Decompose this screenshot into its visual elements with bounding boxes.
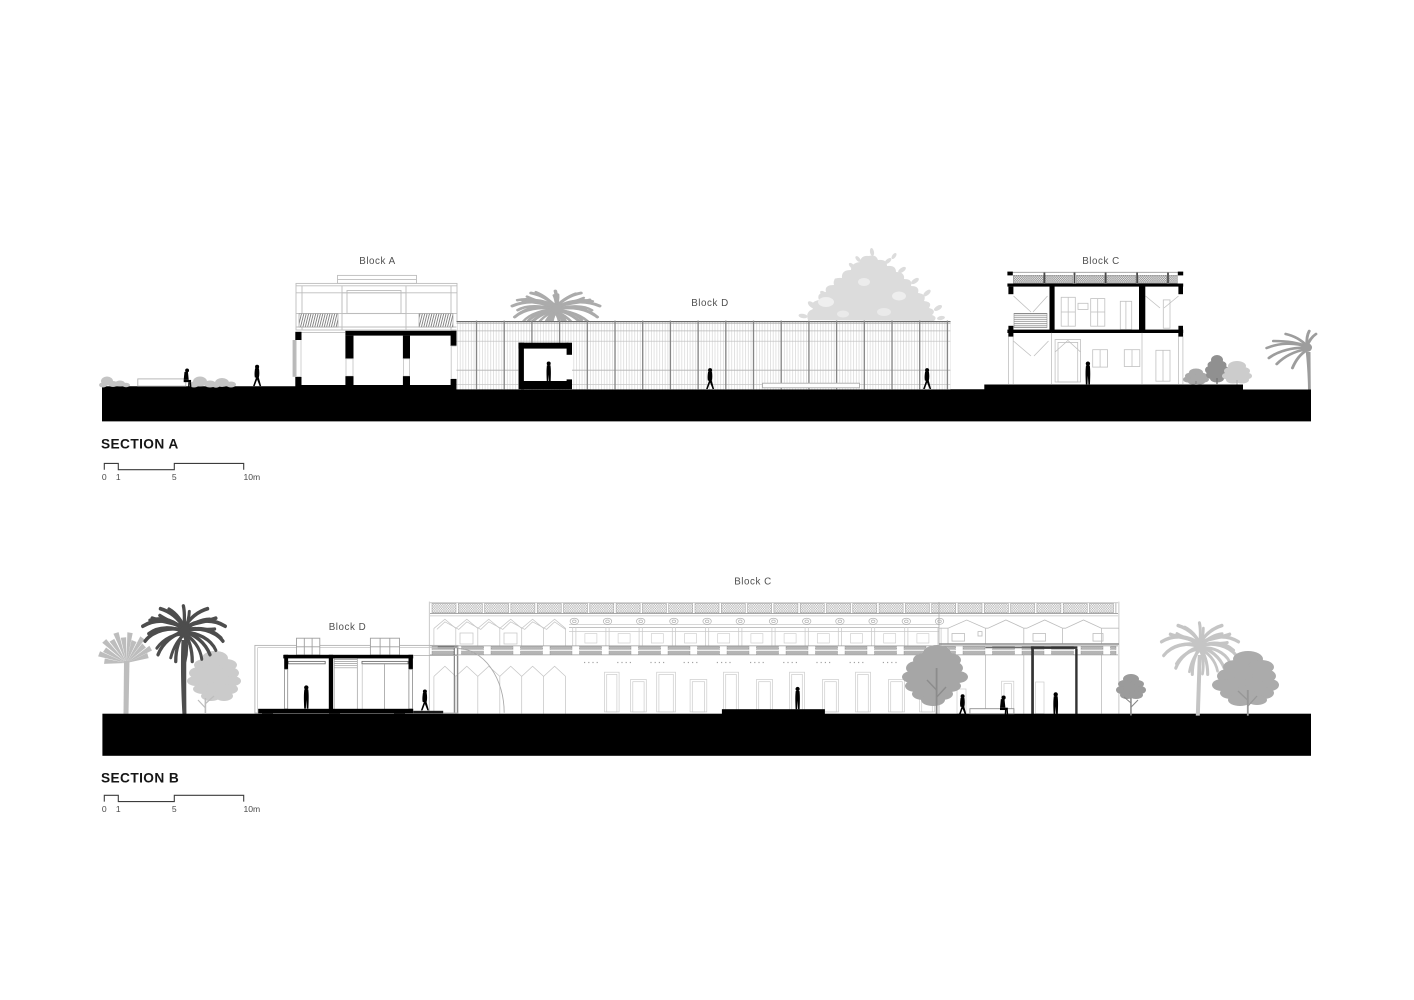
svg-text:0: 0	[102, 804, 107, 814]
svg-text:SECTION A: SECTION A	[101, 437, 179, 452]
svg-text:Block D: Block D	[691, 298, 729, 309]
svg-text:1: 1	[116, 472, 121, 482]
svg-text:10m: 10m	[244, 472, 261, 482]
svg-text:Block A: Block A	[359, 256, 396, 267]
svg-text:Block C: Block C	[734, 577, 772, 588]
svg-text:10m: 10m	[244, 804, 261, 814]
svg-text:Block C: Block C	[1082, 256, 1120, 267]
svg-text:0: 0	[102, 472, 107, 482]
svg-text:5: 5	[172, 804, 177, 814]
svg-text:Block D: Block D	[329, 622, 367, 633]
svg-text:SECTION B: SECTION B	[101, 771, 179, 786]
svg-text:1: 1	[116, 804, 121, 814]
svg-text:5: 5	[172, 472, 177, 482]
